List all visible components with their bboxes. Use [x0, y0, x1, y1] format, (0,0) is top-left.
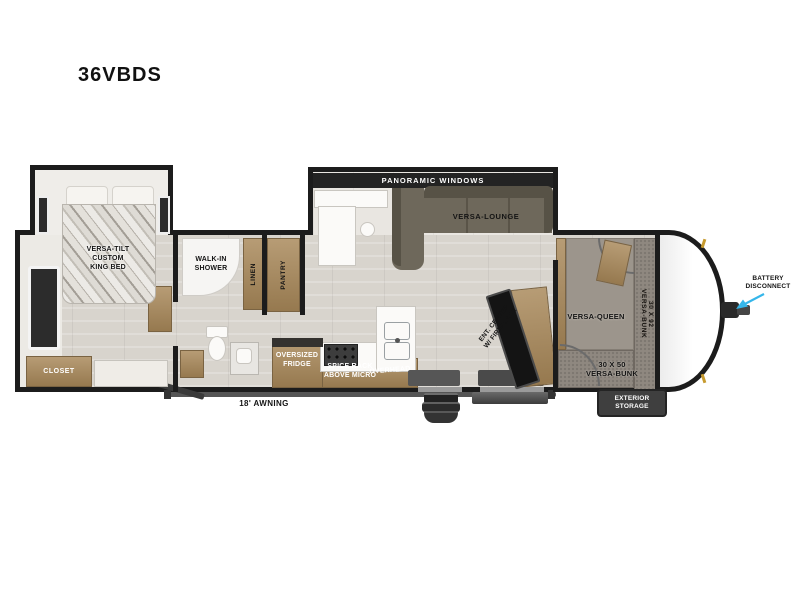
bedroom-bench [94, 360, 168, 387]
battery-disconnect-arrow-icon [724, 290, 768, 316]
bunk-30x50-label: 30 X 50 VERSA-BUNK [566, 360, 658, 379]
pantry-cabinet: PANTRY [267, 238, 300, 312]
bath-cabinet [180, 350, 204, 378]
bunk-30x92-label: 30 X 92 VERSA-BUNK [640, 289, 654, 338]
rear-window [28, 266, 60, 350]
exterior-storage-label: EXTERIOR STORAGE [615, 395, 650, 411]
toilet [208, 336, 226, 361]
sofa-armrest [544, 186, 553, 233]
linen-cabinet: LINEN [243, 238, 263, 310]
entry-mat [408, 370, 460, 386]
king-bed-label: VERSA-TILT CUSTOM KING BED [62, 246, 154, 272]
bathroom-wall-left-upper [173, 235, 178, 302]
bunkroom-wall [553, 260, 558, 392]
entry-steps [422, 393, 460, 424]
exterior-storage-badge: EXTERIOR STORAGE [597, 389, 667, 417]
bathroom-wall-left-lower [173, 346, 178, 392]
door-threshold [480, 387, 544, 392]
pantry-wall-right [300, 235, 305, 315]
bath-sink [236, 348, 252, 364]
linen-label: LINEN [250, 263, 257, 286]
pantry-label: PANTRY [280, 260, 287, 290]
bedroom-slide-window-left [37, 196, 49, 234]
clearance-light [701, 239, 707, 248]
door-threshold [418, 387, 462, 392]
step [424, 411, 458, 423]
dinette-chair [360, 222, 375, 237]
entry-step-platform [472, 392, 548, 404]
versa-queen-label: VERSA-QUEEN [556, 312, 636, 321]
dinette-table [318, 206, 356, 266]
floorplan-canvas: 36VBDS VERSA-TILT CUSTOM KING BED CLOSET… [0, 0, 800, 600]
closet-label: CLOSET [28, 368, 90, 377]
panoramic-windows-label: PANORAMIC WINDOWS [382, 176, 485, 185]
walk-in-shower-label: WALK-IN SHOWER [180, 256, 242, 274]
sofa-chaise-back [392, 188, 401, 266]
bathroom-wall-right [262, 235, 267, 315]
kitchen-faucet [395, 338, 400, 343]
front-cap [655, 230, 725, 392]
awning-label: 18' AWNING [224, 399, 304, 409]
battery-disconnect-label: BATTERY DISCONNECT [738, 275, 798, 291]
clearance-light [701, 374, 707, 383]
bedroom-slide-window-right [158, 196, 170, 234]
kitchen-sink-basin [384, 342, 410, 360]
fridge-top [272, 338, 323, 347]
page-title: 36VBDS [78, 64, 162, 87]
awning-bracket [164, 390, 171, 399]
versa-lounge-label: VERSA-LOUNGE [430, 212, 542, 221]
